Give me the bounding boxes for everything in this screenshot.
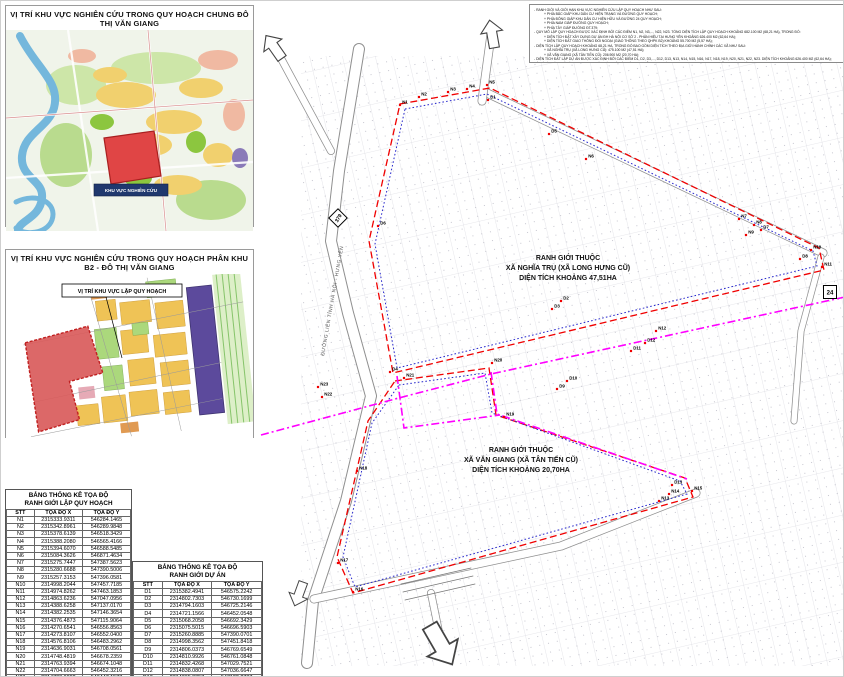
- vertex-marker-D2: [560, 300, 562, 302]
- table-row: N82315280.6688547390.5006: [7, 567, 131, 574]
- note-line: - Ở ĐỒ ÁN NÀY CHỈ XÁC ĐỊNH RANH GIỚI; CÁ…: [534, 62, 841, 63]
- vertex-label-N14: N14: [671, 488, 680, 493]
- table-row: D102314810.9926546761.0848: [134, 653, 262, 660]
- table-row: N32315378.6139546518.3429: [7, 531, 131, 538]
- vertex-label-D13: D13: [674, 479, 683, 484]
- table-row: N12315333.9311546284.1465: [7, 516, 131, 523]
- route-badge-24: 24: [824, 286, 837, 299]
- vertex-marker-N14: [668, 493, 670, 495]
- vertex-label-D7: D7: [763, 224, 769, 229]
- table-row: N162314270.6541546556.8563: [7, 624, 131, 631]
- vertex-marker-N8: [753, 224, 755, 226]
- inset-master-plan-title: VỊ TRÍ KHU VỰC NGHIÊN CỨU TRONG QUY HOẠC…: [6, 6, 253, 30]
- table2-title-line2: RANH GIỚI DỰ ÁN: [133, 572, 262, 580]
- table1-body: N12315333.9311546284.1465N22315342.89615…: [7, 516, 131, 677]
- inset1-study-area: [104, 131, 161, 184]
- vertex-marker-N18: [356, 470, 358, 472]
- vertex-marker-D9: [556, 388, 558, 390]
- vertex-marker-N10: [810, 249, 812, 251]
- vertex-label-D10: D10: [569, 375, 578, 380]
- table-row: D12315382.4941546575.2242: [134, 588, 262, 595]
- column-header: TỌA ĐỘ X: [34, 509, 82, 516]
- route-badge-24-label: 24: [827, 291, 834, 297]
- vertex-marker-N4: [466, 88, 468, 90]
- table-row: N192314636.9031546708.0561: [7, 646, 131, 653]
- vertex-marker-N2: [418, 96, 420, 98]
- table1-header-row: STTTỌA ĐỘ XTỌA ĐỘ Y: [7, 509, 131, 516]
- table-row: N112314974.8262547463.1853: [7, 588, 131, 595]
- vertex-marker-N11: [821, 266, 823, 268]
- vertex-label-N23: N23: [320, 381, 329, 386]
- planning-drawing-canvas: 379 24 ĐƯỜNG LIÊN TỈNH HÀ NỘI - HƯNG YÊN…: [0, 0, 844, 677]
- notes-box: - RANH GIỚI VÀ GIỚI HẠN KHU VỰC NGHIÊN C…: [529, 4, 844, 63]
- coord-table-planning-boundary: BẢNG THỐNG KÊ TỌA ĐỘ RANH GIỚI LẬP QUY H…: [5, 489, 132, 677]
- vertex-marker-N6: [585, 158, 587, 160]
- vertex-label-N12: N12: [658, 325, 667, 330]
- table-row: D92314806.0373546769.6549: [134, 646, 262, 653]
- vertex-marker-D5: [548, 133, 550, 135]
- table-row: N202314748.4819546678.2359: [7, 653, 131, 660]
- vertex-label-D3: D3: [554, 303, 560, 308]
- table-row: N172314273.8107546552.0400: [7, 631, 131, 638]
- vertex-marker-D8: [799, 258, 801, 260]
- inset-master-plan-map: KHU VỰC NGHIÊN CỨU: [6, 30, 253, 231]
- vertex-marker-N9: [745, 234, 747, 236]
- vertex-marker-N17: [337, 562, 339, 564]
- column-header: TỌA ĐỘ Y: [82, 509, 130, 516]
- vertex-marker-N1: [399, 104, 401, 106]
- vertex-label-N16: N16: [355, 586, 364, 591]
- table2-title-line1: BẢNG THỐNG KÊ TỌA ĐỘ: [133, 564, 262, 572]
- table-row: N22315342.8961546289.9848: [7, 524, 131, 531]
- table-row: N52315394.6070546588.5485: [7, 545, 131, 552]
- table-row: D62315075.5015546696.5903: [134, 624, 262, 631]
- vertex-marker-D7: [760, 229, 762, 231]
- column-header: TỌA ĐỘ X: [162, 581, 212, 588]
- vertex-marker-D3: [551, 308, 553, 310]
- table-row: N72315275.7447547387.5623: [7, 560, 131, 567]
- table-row: N212314763.9394546674.1048: [7, 660, 131, 667]
- vertex-label-N10: N10: [813, 244, 822, 249]
- vertex-label-D8: D8: [802, 253, 808, 258]
- vertex-marker-N15: [691, 490, 693, 492]
- vertex-label-D5: D5: [551, 128, 557, 133]
- inset-zoning-plan: VỊ TRÍ KHU VỰC NGHIÊN CỨU TRONG QUY HOẠC…: [5, 249, 254, 438]
- vertex-marker-D12: [644, 342, 646, 344]
- inset-zoning-plan-title: VỊ TRÍ KHU VỰC NGHIÊN CỨU TRONG QUY HOẠC…: [6, 250, 253, 274]
- region1-line1: RANH GIỚI THUỘC: [536, 253, 600, 262]
- coord-table-project-boundary: BẢNG THỐNG KÊ TỌA ĐỘ RANH GIỚI DỰ ÁN STT…: [132, 561, 263, 677]
- table-row: N182314576.8106546483.2962: [7, 639, 131, 646]
- vertex-label-D9: D9: [559, 383, 565, 388]
- region2-line1: RANH GIỚI THUỘC: [489, 445, 553, 454]
- vertex-marker-D6: [377, 225, 379, 227]
- vertex-marker-N23: [317, 386, 319, 388]
- table2-header-row: STTTỌA ĐỘ XTỌA ĐỘ Y: [134, 581, 262, 588]
- vertex-marker-N22: [321, 396, 323, 398]
- vertex-marker-D10: [566, 380, 568, 382]
- vertex-label-N11: N11: [824, 261, 832, 266]
- region1-line2: XÃ NGHĨA TRỤ (XÃ LONG HƯNG CŨ): [506, 263, 630, 272]
- vertex-label-D1: D1: [490, 94, 496, 99]
- table2-body: D12315382.4941546575.2242D22314802.73035…: [134, 588, 262, 677]
- vertex-marker-N20: [491, 362, 493, 364]
- inset-zoning-plan-map: VỊ TRÍ KHU VỰC LẬP QUY HOẠCH: [6, 274, 253, 442]
- table-row: D122314838.0807547036.6647: [134, 667, 262, 674]
- table-row: D22314802.7303546730.1699: [134, 596, 262, 603]
- vertex-marker-N13: [658, 500, 660, 502]
- region2-line3: DIỆN TÍCH KHOẢNG 20,70HA: [472, 465, 570, 474]
- vertex-marker-D4: [389, 371, 391, 373]
- table-row: N222314704.6663546452.3216: [7, 667, 131, 674]
- vertex-label-N13: N13: [661, 495, 670, 500]
- vertex-label-N2: N2: [421, 91, 427, 96]
- table-row: N152314376.4873547115.9064: [7, 617, 131, 624]
- vertex-marker-N5: [486, 84, 488, 86]
- table-row: D32314794.1603546725.2146: [134, 603, 262, 610]
- vertex-label-N7: N7: [741, 213, 747, 218]
- cadastral-texture: [301, 56, 843, 666]
- table-row: N42315388.2080546565.4166: [7, 538, 131, 545]
- column-header: TỌA ĐỘ Y: [212, 581, 262, 588]
- table-row: N122314863.6236547047.0956: [7, 595, 131, 602]
- vertex-marker-D13: [671, 484, 673, 486]
- vertex-marker-N19: [503, 416, 505, 418]
- table-row: D112314832.4268547029.7521: [134, 660, 262, 667]
- inset-master-plan: VỊ TRÍ KHU VỰC NGHIÊN CỨU TRONG QUY HOẠC…: [5, 5, 254, 227]
- region1-line3: DIỆN TÍCH KHOẢNG 47,51HA: [519, 273, 617, 282]
- table-row: D52315068.2058546692.3429: [134, 617, 262, 624]
- vertex-label-N15: N15: [694, 485, 703, 490]
- vertex-label-N22: N22: [324, 391, 333, 396]
- vertex-label-D6: D6: [380, 220, 386, 225]
- table-row: N62315084.3626546871.4634: [7, 552, 131, 559]
- vertex-label-D4: D4: [392, 366, 398, 371]
- vertex-marker-N16: [352, 591, 354, 593]
- vertex-label-N18: N18: [359, 465, 368, 470]
- vertex-label-N6: N6: [588, 153, 594, 158]
- vertex-label-D2: D2: [563, 295, 569, 300]
- table-row: D72315260.8885547390.0701: [134, 632, 262, 639]
- column-header: STT: [7, 509, 35, 516]
- inset2-callout-text: VỊ TRÍ KHU VỰC LẬP QUY HOẠCH: [78, 287, 167, 295]
- vertex-label-N3: N3: [450, 86, 456, 91]
- vertex-marker-D1: [487, 99, 489, 101]
- vertex-marker-N7: [738, 218, 740, 220]
- vertex-label-N20: N20: [494, 357, 503, 362]
- vertex-marker-D11: [630, 350, 632, 352]
- vertex-label-D11: D11: [633, 345, 641, 350]
- notes-lines: - RANH GIỚI VÀ GIỚI HẠN KHU VỰC NGHIÊN C…: [534, 8, 841, 63]
- vertex-label-N5: N5: [489, 79, 495, 84]
- vertex-marker-N3: [447, 91, 449, 93]
- vertex-label-N9: N9: [748, 229, 754, 234]
- table-row: D42314721.1566546452.0548: [134, 610, 262, 617]
- table1-title-line1: BẢNG THỐNG KÊ TỌA ĐỘ: [6, 492, 131, 500]
- table-row: N92315257.3153547396.0581: [7, 574, 131, 581]
- vertex-label-N17: N17: [340, 557, 349, 562]
- inset1-label-text: KHU VỰC NGHIÊN CỨU: [105, 186, 158, 193]
- vertex-marker-N12: [655, 330, 657, 332]
- table-row: N132314388.6258547137.0170: [7, 603, 131, 610]
- vertex-label-N19: N19: [506, 411, 515, 416]
- vertex-label-N4: N4: [469, 83, 475, 88]
- table-row: N102314998.2044547457.7185: [7, 581, 131, 588]
- table1-title-line2: RANH GIỚI LẬP QUY HOẠCH: [6, 500, 131, 508]
- table-row: D82314998.3562547451.8418: [134, 639, 262, 646]
- vertex-label-N21: N21: [406, 372, 415, 377]
- vertex-label-N8: N8: [756, 219, 762, 224]
- column-header: STT: [134, 581, 163, 588]
- table-row: N142314382.2535547146.3654: [7, 610, 131, 617]
- vertex-marker-N21: [403, 377, 405, 379]
- vertex-label-N1: N1: [402, 99, 408, 104]
- vertex-label-D12: D12: [647, 337, 656, 342]
